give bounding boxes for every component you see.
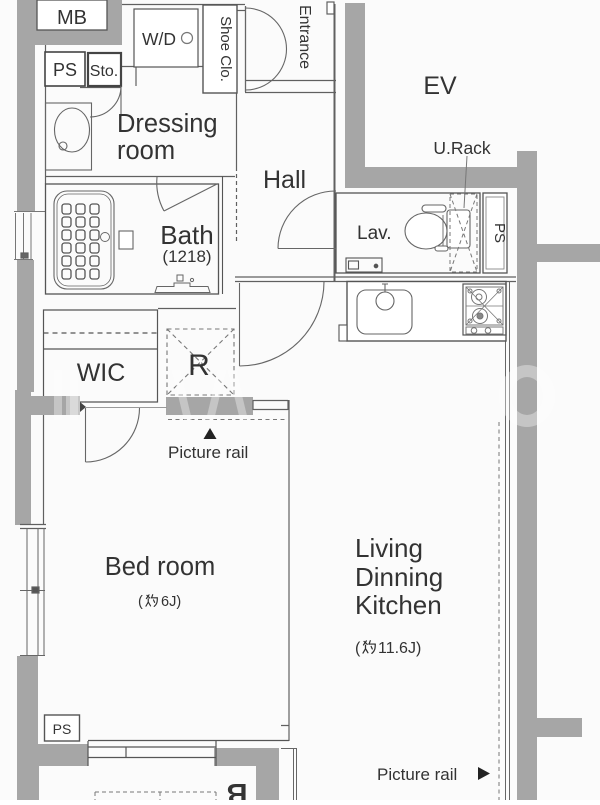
svg-text:Dinning: Dinning bbox=[355, 562, 443, 592]
svg-text:PS: PS bbox=[53, 721, 72, 737]
svg-text:PS: PS bbox=[53, 60, 77, 80]
svg-text:11.6J): 11.6J) bbox=[378, 640, 421, 657]
svg-text:6J): 6J) bbox=[161, 594, 181, 610]
svg-text:Shoe Clo.: Shoe Clo. bbox=[217, 16, 234, 82]
svg-text:Bath: Bath bbox=[160, 220, 214, 250]
svg-text:PS: PS bbox=[491, 223, 508, 243]
svg-text:EV: EV bbox=[423, 72, 457, 100]
svg-text:U.Rack: U.Rack bbox=[433, 138, 491, 158]
svg-text:R: R bbox=[188, 349, 210, 382]
svg-text:B: B bbox=[227, 777, 248, 800]
svg-text:Hall: Hall bbox=[263, 166, 306, 194]
svg-text:W/D: W/D bbox=[142, 29, 176, 49]
svg-text:(: ( bbox=[355, 640, 361, 657]
svg-text:Picture rail: Picture rail bbox=[377, 765, 457, 784]
svg-text:Lav.: Lav. bbox=[357, 223, 392, 244]
svg-text:Picture rail: Picture rail bbox=[168, 443, 248, 462]
svg-text:(: ( bbox=[138, 594, 143, 610]
svg-text:Bed room: Bed room bbox=[105, 553, 216, 581]
svg-text:Dressing: Dressing bbox=[117, 110, 218, 138]
svg-text:(1218): (1218) bbox=[162, 247, 211, 266]
svg-text:room: room bbox=[117, 137, 175, 165]
svg-text:Sto.: Sto. bbox=[90, 63, 118, 80]
svg-text:WIC: WIC bbox=[77, 359, 126, 387]
svg-text:MB: MB bbox=[57, 7, 87, 29]
svg-text:Kitchen: Kitchen bbox=[355, 590, 442, 620]
svg-text:Living: Living bbox=[355, 533, 423, 563]
svg-text:Entrance: Entrance bbox=[296, 5, 313, 69]
